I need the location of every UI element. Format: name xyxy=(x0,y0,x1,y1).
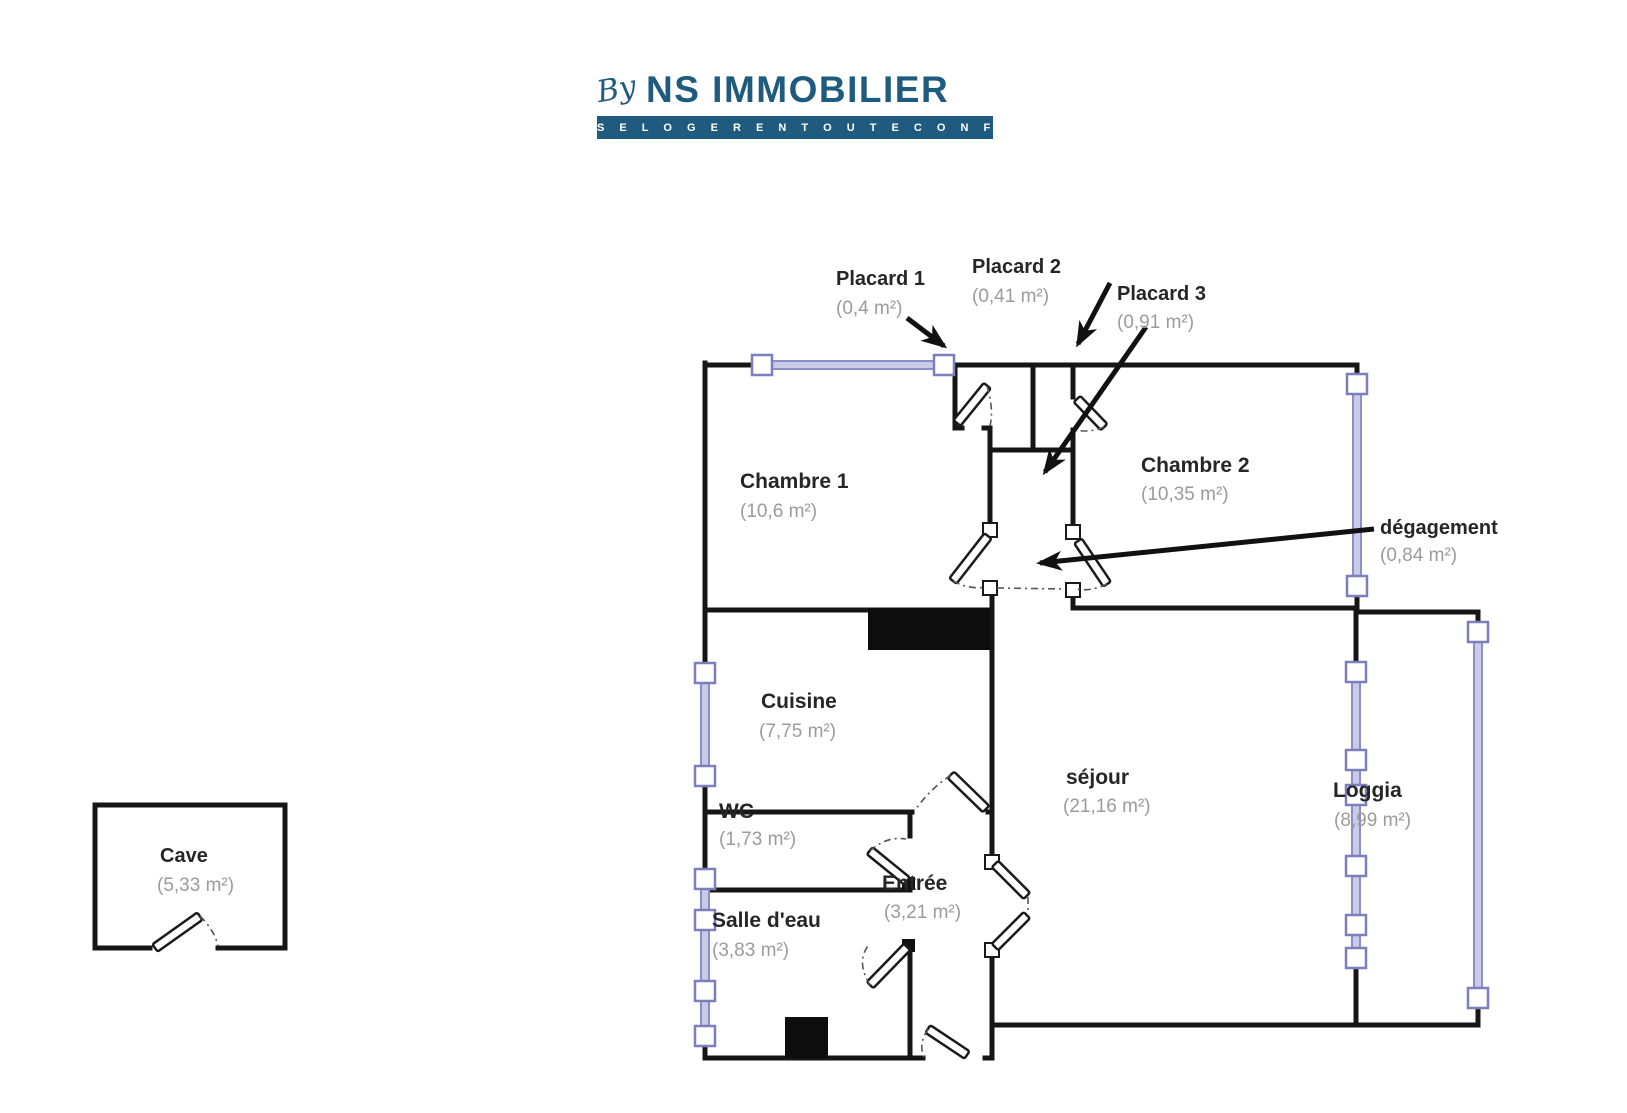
duct-block xyxy=(868,608,990,650)
chambre1-area: (10,6 m²) xyxy=(740,501,817,522)
window-cuisine xyxy=(695,663,715,786)
sejour-area: (21,16 m²) xyxy=(1063,796,1151,817)
chambre1-name: Chambre 1 xyxy=(740,470,849,493)
room-label-entree: Entrée (3,21 m²) xyxy=(882,872,961,923)
loggia-area: (8,99 m²) xyxy=(1334,810,1411,831)
room-label-salle-deau: Salle d'eau (3,83 m²) xyxy=(712,909,821,961)
arrow-placard1 xyxy=(907,318,944,346)
page: By NS IMMOBILIER S E L O G E R E N T O U… xyxy=(0,0,1627,1113)
door-salle-deau xyxy=(867,944,910,988)
arrow-placard3 xyxy=(1045,327,1146,472)
door-sejour-b xyxy=(992,912,1030,950)
salle-deau-name: Salle d'eau xyxy=(712,909,821,932)
arrow-degagement xyxy=(1040,529,1374,563)
chambre2-area: (10,35 m²) xyxy=(1141,484,1229,505)
room-label-chambre2: Chambre 2 (10,35 m²) xyxy=(1141,454,1250,505)
room-label-placard1: Placard 1 (0,4 m²) xyxy=(836,268,925,319)
window-chambre1 xyxy=(752,355,954,375)
room-label-chambre1: Chambre 1 (10,6 m²) xyxy=(740,470,849,522)
room-label-degagement: dégagement (0,84 m²) xyxy=(1380,517,1498,566)
entree-area: (3,21 m²) xyxy=(884,902,961,923)
room-label-placard3: Placard 3 (0,91 m²) xyxy=(1117,283,1206,333)
degagement-name: dégagement xyxy=(1380,517,1498,539)
wc-area: (1,73 m²) xyxy=(719,829,796,850)
chambre2-name: Chambre 2 xyxy=(1141,454,1250,477)
door-chambre2 xyxy=(1074,538,1111,586)
placard1-name: Placard 1 xyxy=(836,268,925,290)
cuisine-name: Cuisine xyxy=(761,690,837,713)
room-label-sejour: séjour (21,16 m²) xyxy=(1063,766,1151,817)
wc-name: WC xyxy=(719,800,754,823)
placard3-area: (0,91 m²) xyxy=(1117,312,1194,333)
room-label-wc: WC (1,73 m²) xyxy=(719,800,796,850)
cave-name: Cave xyxy=(160,845,208,867)
door-sejour-a xyxy=(992,861,1030,899)
room-label-placard2: Placard 2 (0,41 m²) xyxy=(972,256,1061,307)
room-label-loggia: Loggia (8,99 m²) xyxy=(1333,779,1411,831)
duct-block-bath xyxy=(785,1017,828,1058)
door-placard1 xyxy=(954,383,991,426)
placard2-area: (0,41 m²) xyxy=(972,286,1049,307)
floor-plan: Chambre 1 (10,6 m²) Chambre 2 (10,35 m²)… xyxy=(0,0,1627,1113)
window-chambre2 xyxy=(1347,374,1367,596)
salle-deau-area: (3,83 m²) xyxy=(712,940,789,961)
placard3-name: Placard 3 xyxy=(1117,283,1206,305)
doors xyxy=(152,383,1110,1059)
room-label-cuisine: Cuisine (7,75 m²) xyxy=(759,690,837,742)
window-loggia xyxy=(1468,622,1488,1008)
placard1-area: (0,4 m²) xyxy=(836,298,903,319)
loggia-name: Loggia xyxy=(1333,779,1402,802)
arrow-placard2 xyxy=(1078,283,1110,344)
degagement-area: (0,84 m²) xyxy=(1380,545,1457,566)
door-cave xyxy=(152,912,202,951)
sejour-name: séjour xyxy=(1066,766,1129,789)
cave-area: (5,33 m²) xyxy=(157,875,234,896)
door-cuisine xyxy=(948,772,989,813)
entree-name: Entrée xyxy=(882,872,947,895)
room-label-cave: Cave (5,33 m²) xyxy=(157,845,234,896)
placard2-name: Placard 2 xyxy=(972,256,1061,278)
door-entree xyxy=(925,1025,969,1059)
cuisine-area: (7,75 m²) xyxy=(759,721,836,742)
door-chambre1 xyxy=(949,533,991,584)
